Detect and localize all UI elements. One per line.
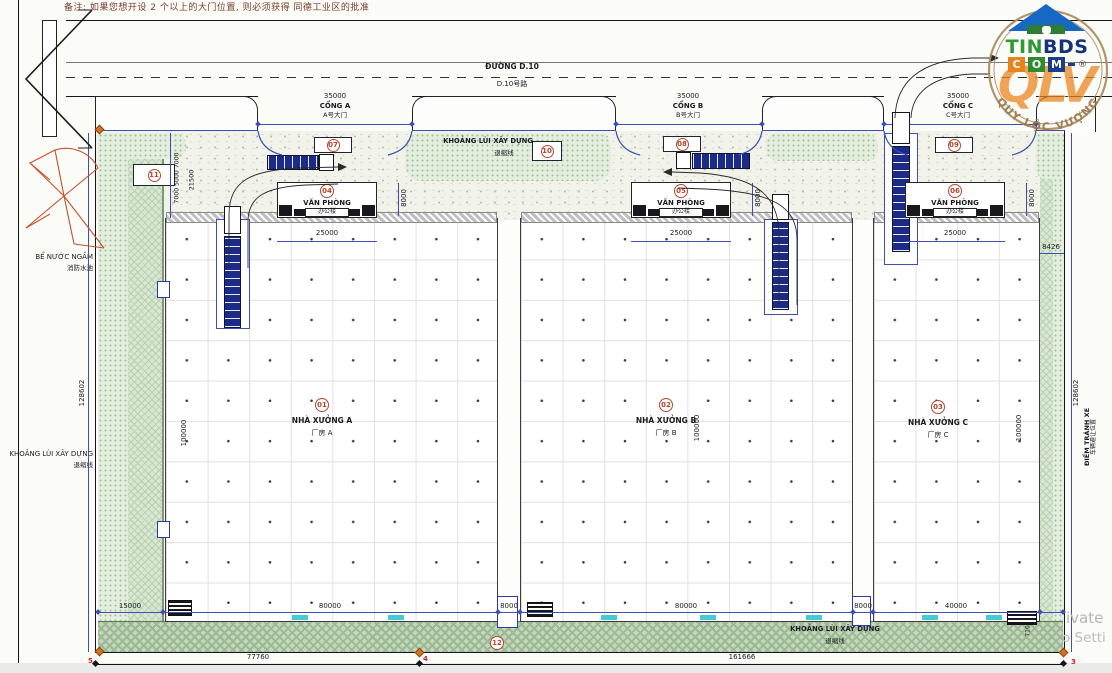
gate-b-dim-line xyxy=(616,124,762,125)
left-callout: 11 xyxy=(148,169,161,182)
office-room-block xyxy=(633,205,646,216)
gate-c-dim: 35000 xyxy=(947,92,969,100)
office-b-name-vi: VĂN PHÒNG xyxy=(657,199,705,207)
bottom-dim-8000-b: 8000 xyxy=(854,602,872,610)
gate-a-name-vi: CỔNG A xyxy=(320,102,351,110)
office-room-block xyxy=(716,205,729,216)
office-a-name-cn: 办公楼 xyxy=(318,209,336,216)
factory-a-length-dim: 100000 xyxy=(180,420,188,447)
vehicle-avoid-label-cn: 车辆避让位置 xyxy=(1091,408,1098,466)
plan-note: 备注: 如果您想开设 2 个以上的大门位置, 则必须获得 同德工业区的批准 xyxy=(64,3,369,13)
stack-dim-line xyxy=(170,133,171,218)
corner-marker xyxy=(1059,648,1069,658)
left-height-dim-line xyxy=(88,133,89,652)
gate-b-callout-box: 08 xyxy=(663,136,701,152)
corner-number-5: 5 xyxy=(88,657,93,665)
dock-marker xyxy=(601,615,617,620)
road-median-island xyxy=(42,20,57,137)
setback-top-label-vi: KHOẢNG LÙI XÂY DỰNG xyxy=(443,138,533,146)
truck-cab xyxy=(224,206,241,234)
truck-trailer xyxy=(772,222,789,310)
gate-b-callout: 08 xyxy=(676,138,689,151)
office-a-callout: 04 xyxy=(320,184,334,198)
office-a-width-line xyxy=(277,241,377,242)
office-a-depth-dim: 8000 xyxy=(400,189,408,207)
bottom-total-b: 161666 xyxy=(729,653,756,661)
logo-letter-c: C xyxy=(1008,57,1025,72)
office-a-name-cn-box: 办公楼 xyxy=(305,208,349,217)
truck-trailer xyxy=(224,236,241,328)
logo-house-icon xyxy=(1008,4,1085,34)
green-island-bc xyxy=(766,133,878,161)
office-room-block xyxy=(977,209,988,216)
left-height-dim: 128602 xyxy=(78,380,86,407)
office-c-name-vi: VĂN PHÒNG xyxy=(931,199,979,207)
logo-brand-tin: TIN xyxy=(1006,36,1043,58)
truck-trailer xyxy=(267,155,319,170)
truck-cab xyxy=(676,152,691,169)
office-c-depth-dim: 8000 xyxy=(1028,189,1036,207)
truck-trailer xyxy=(692,153,750,169)
frame-left-line xyxy=(18,0,19,663)
office-c-depth-line xyxy=(1026,183,1027,216)
setback-top-callout: 10 xyxy=(541,145,554,158)
factory-a-name-vi: NHÀ XƯỞNG A xyxy=(292,417,352,426)
gate-b-name-cn: B号大门 xyxy=(676,112,700,119)
logo-brand-bds: BDS xyxy=(1043,36,1088,58)
site-boundary-top-seg2 xyxy=(412,130,616,131)
site-boundary-top-seg1 xyxy=(95,130,258,131)
gate-a-callout: 07 xyxy=(327,139,340,152)
side-door xyxy=(157,281,170,298)
setback-top-callout-box: 10 xyxy=(532,141,562,161)
corner-dim-7102: 7102 xyxy=(1026,621,1033,636)
setback-strip-left-inner xyxy=(128,133,164,652)
office-b-width-dim: 25000 xyxy=(670,229,692,237)
road-top-edge xyxy=(66,20,1112,21)
office-room-block xyxy=(349,209,360,216)
big-left-arrow-icon xyxy=(26,10,92,148)
bottom-dim-15000: 15000 xyxy=(119,602,141,610)
road-lane-line xyxy=(66,62,1112,63)
factory-c-name-cn: 厂房 C xyxy=(927,431,948,439)
logo-com-row: C O M ® xyxy=(1008,57,1087,72)
dock-marker xyxy=(292,615,308,620)
factory-c-name-vi: NHÀ XƯỞNG C xyxy=(908,419,968,428)
bottom-dim-40000: 40000 xyxy=(945,602,967,610)
truck-cab xyxy=(772,194,789,220)
stack-left-dim: 7000 5000 7000 xyxy=(173,152,180,203)
logo-letter-m: M xyxy=(1048,57,1065,72)
setback-left-label-cn: 退缩线 xyxy=(5,462,93,469)
office-b-name-cn: 办公楼 xyxy=(672,209,690,216)
factory-a-name-cn: 厂房 A xyxy=(311,429,332,437)
gate-c-name-vi: CỔNG C xyxy=(943,102,973,110)
setback-bottom-label-cn: 退缩线 xyxy=(825,638,845,645)
gate-c-callout-box: 09 xyxy=(935,137,973,153)
office-c: 06 VĂN PHÒNG 办公楼 xyxy=(905,182,1005,218)
bottom-dim-line xyxy=(98,612,1063,613)
setback-bottom-label-vi: KHOẢNG LÙI XÂY DỰNG xyxy=(790,626,880,634)
office-c-name-cn-box: 办公楼 xyxy=(933,208,977,217)
site-boundary-left xyxy=(95,131,96,652)
road-name-cn: D.10号路 xyxy=(497,80,528,88)
office-b-name-cn-box: 办公楼 xyxy=(659,208,703,217)
dock-marker xyxy=(388,615,404,620)
north-compass-icon xyxy=(26,148,104,248)
setback-strip-left-outer xyxy=(98,133,128,652)
vehicle-avoid-label: ĐIỂM TRÁNH XE 车辆避让位置 xyxy=(1084,408,1098,466)
gate-a-dim: 35000 xyxy=(324,92,346,100)
logo-brand: TINBDS xyxy=(1002,36,1092,58)
factory-b-name-cn: 厂房 B xyxy=(655,429,676,437)
office-room-block xyxy=(294,209,305,216)
logo-letter-o: O xyxy=(1028,57,1045,72)
office-b-width-line xyxy=(631,241,731,242)
watermark-line2: o Setti xyxy=(1062,630,1106,646)
office-room-block xyxy=(990,205,1003,216)
office-a: 04 VĂN PHÒNG 办公楼 xyxy=(277,182,377,218)
office-a-name-vi: VĂN PHÒNG xyxy=(303,199,351,207)
water-tank-label-cn: 消防水池 xyxy=(8,265,93,272)
water-tank-label-vi: BỂ NƯỚC NGẦM xyxy=(8,253,93,261)
corner-number-4: 4 xyxy=(423,655,428,663)
office-c-callout: 06 xyxy=(948,184,962,198)
curb-island-ab xyxy=(412,96,616,132)
office-room-block xyxy=(907,205,920,216)
right-height-dim: 128602 xyxy=(1072,380,1080,407)
logo-registered-mark: ® xyxy=(1078,60,1087,70)
curb-island-left xyxy=(95,96,258,132)
office-c-width-line xyxy=(905,241,1005,242)
truck-cab xyxy=(319,154,334,171)
site-boundary-top-seg4 xyxy=(1036,130,1065,131)
bottom-dim-80000-b: 80000 xyxy=(675,602,697,610)
corner-number-3: 3 xyxy=(1071,658,1076,666)
gate-c-callout: 09 xyxy=(948,139,961,152)
site-boundary-bottom xyxy=(95,652,1065,653)
setback-bottom-callout: 12 xyxy=(490,636,504,650)
stair-block xyxy=(1007,611,1037,625)
office-b-depth-line xyxy=(752,183,753,216)
factory-c-callout: 03 xyxy=(931,400,945,414)
dock-marker xyxy=(806,615,822,620)
office-room-block xyxy=(648,209,659,216)
office-room-block xyxy=(922,209,933,216)
setback-strip-right-inner xyxy=(1040,133,1053,652)
left-callout-box: 11 xyxy=(133,164,175,186)
curb-island-bc xyxy=(762,96,884,132)
bottom-total-a: 77760 xyxy=(247,653,269,661)
stair-block xyxy=(527,602,553,617)
green-island-right xyxy=(1036,133,1064,179)
office-room-block xyxy=(362,205,375,216)
factory-b-name-vi: NHÀ XƯỞNG B xyxy=(636,417,696,426)
gate-b-dim: 35000 xyxy=(677,92,699,100)
gate-c-name-cn: C号大门 xyxy=(946,112,970,119)
site-boundary-right xyxy=(1064,131,1065,652)
dock-marker xyxy=(700,615,716,620)
gate-a-callout-box: 07 xyxy=(314,137,352,153)
gate-b-name-vi: CỔNG B xyxy=(673,102,703,110)
gate-a-name-cn: A号大门 xyxy=(323,112,347,119)
setback-strip-bottom xyxy=(98,621,1063,652)
office-a-width-dim: 25000 xyxy=(316,229,338,237)
truck-cab xyxy=(892,112,910,144)
setback-left-label-vi: KHOẢNG LÙI XÂY DỰNG xyxy=(5,450,93,458)
dock-marker xyxy=(986,615,1002,620)
logo-dash xyxy=(1068,63,1075,66)
dock-marker xyxy=(922,615,938,620)
office-room-block xyxy=(279,205,292,216)
side-door xyxy=(157,521,170,538)
setback-strip-right-outer xyxy=(1053,133,1064,652)
site-plan-canvas: 备注: 如果您想开设 2 个以上的大门位置, 则必须获得 同德工业区的批准 ĐƯ… xyxy=(0,0,1112,673)
road-name-vi: ĐƯỜNG D.10 xyxy=(485,63,539,72)
bottom-dim-80000-a: 80000 xyxy=(319,602,341,610)
office-b: 05 VĂN PHÒNG 办公楼 xyxy=(631,182,731,218)
setback-top-label-cn: 退缩线 xyxy=(494,150,514,157)
site-boundary-top-seg3 xyxy=(762,130,884,131)
right-gap-dim: 8426 xyxy=(1042,243,1060,251)
factory-a-callout: 01 xyxy=(315,398,329,412)
total-left-top-dim: 21500 xyxy=(188,170,195,191)
factory-b-length-dim: 100000 xyxy=(693,415,701,442)
gate-a-dim-line xyxy=(258,124,412,125)
office-b-callout: 05 xyxy=(674,184,688,198)
office-b-depth-dim: 8000 xyxy=(754,189,762,207)
bottom-total-line xyxy=(95,664,1065,665)
stair-block xyxy=(168,600,192,616)
watermark-line1: ivate xyxy=(1066,609,1103,627)
office-a-depth-line xyxy=(398,183,399,216)
office-room-block xyxy=(703,209,714,216)
office-c-width-dim: 25000 xyxy=(944,229,966,237)
bottom-dim-8000-a: 8000 xyxy=(500,602,518,610)
office-c-name-cn: 办公楼 xyxy=(946,209,964,216)
right-gap-dim-line xyxy=(1040,253,1064,254)
road-center-dashed-line xyxy=(66,77,1112,78)
curb-island-right xyxy=(1036,96,1096,132)
factory-b-callout: 02 xyxy=(659,398,673,412)
factory-c-length-dim: 100000 xyxy=(1015,415,1023,442)
